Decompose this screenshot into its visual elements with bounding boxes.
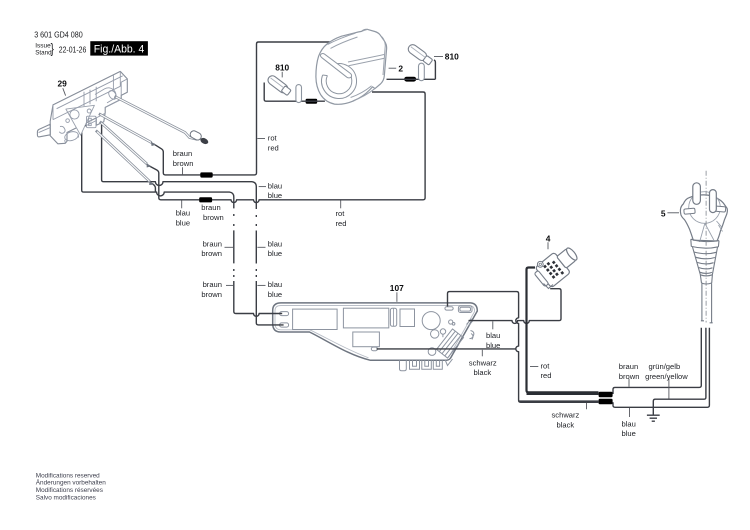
- svg-text:blue: blue: [268, 249, 282, 258]
- svg-text:braun: braun: [203, 239, 222, 248]
- svg-text:Fig./Abb. 4: Fig./Abb. 4: [94, 44, 145, 56]
- svg-text:blau: blau: [268, 239, 282, 248]
- svg-text:red: red: [268, 143, 279, 152]
- svg-text:Änderungen vorbehalten: Änderungen vorbehalten: [36, 479, 106, 487]
- svg-text:green/yellow: green/yellow: [645, 372, 688, 381]
- svg-text:blue: blue: [268, 290, 282, 299]
- svg-text:blau: blau: [622, 419, 636, 428]
- svg-text:blau: blau: [268, 280, 282, 289]
- svg-text:brown: brown: [201, 290, 222, 299]
- svg-text:braun: braun: [203, 280, 222, 289]
- svg-text:blue: blue: [486, 341, 500, 350]
- svg-text:brown: brown: [619, 372, 640, 381]
- svg-text:rot: rot: [541, 361, 551, 370]
- svg-text:blue: blue: [268, 191, 282, 200]
- svg-text:braun: braun: [201, 203, 220, 212]
- svg-text:blue: blue: [622, 429, 636, 438]
- svg-text:4: 4: [546, 233, 551, 243]
- svg-text:braun: braun: [173, 149, 192, 158]
- svg-text:Modifications reserved: Modifications reserved: [36, 472, 100, 479]
- svg-text:2: 2: [398, 63, 403, 73]
- svg-text:brown: brown: [203, 213, 224, 222]
- svg-text:Modifications réservées: Modifications réservées: [36, 487, 103, 494]
- svg-text:107: 107: [390, 283, 404, 293]
- svg-text:grün/gelb: grün/gelb: [649, 362, 681, 371]
- svg-text:red: red: [541, 371, 552, 380]
- svg-text:}: }: [51, 42, 54, 57]
- svg-text:blue: blue: [176, 218, 190, 227]
- svg-text:rot: rot: [268, 134, 278, 143]
- svg-text:29: 29: [58, 79, 68, 89]
- svg-text:Issue: Issue: [35, 43, 51, 50]
- svg-text:blau: blau: [486, 331, 500, 340]
- svg-text:22-01-26: 22-01-26: [59, 44, 87, 54]
- svg-text:blau: blau: [176, 209, 190, 218]
- svg-text:brown: brown: [201, 249, 222, 258]
- svg-text:braun: braun: [619, 362, 638, 371]
- svg-text:810: 810: [275, 63, 289, 73]
- svg-text:5: 5: [661, 209, 666, 219]
- svg-text:red: red: [336, 219, 347, 228]
- svg-text:Salvo modificaciones: Salvo modificaciones: [36, 495, 96, 502]
- svg-text:black: black: [474, 368, 492, 377]
- svg-text:schwarz: schwarz: [469, 358, 497, 367]
- svg-text:schwarz: schwarz: [552, 411, 580, 420]
- svg-text:Stand: Stand: [35, 50, 52, 57]
- svg-text:blau: blau: [268, 181, 282, 190]
- svg-text:black: black: [557, 420, 575, 429]
- svg-text:rot: rot: [336, 209, 346, 218]
- svg-text:brown: brown: [173, 159, 194, 168]
- svg-text:3 601 GD4 080: 3 601 GD4 080: [34, 29, 83, 39]
- svg-text:810: 810: [445, 52, 459, 62]
